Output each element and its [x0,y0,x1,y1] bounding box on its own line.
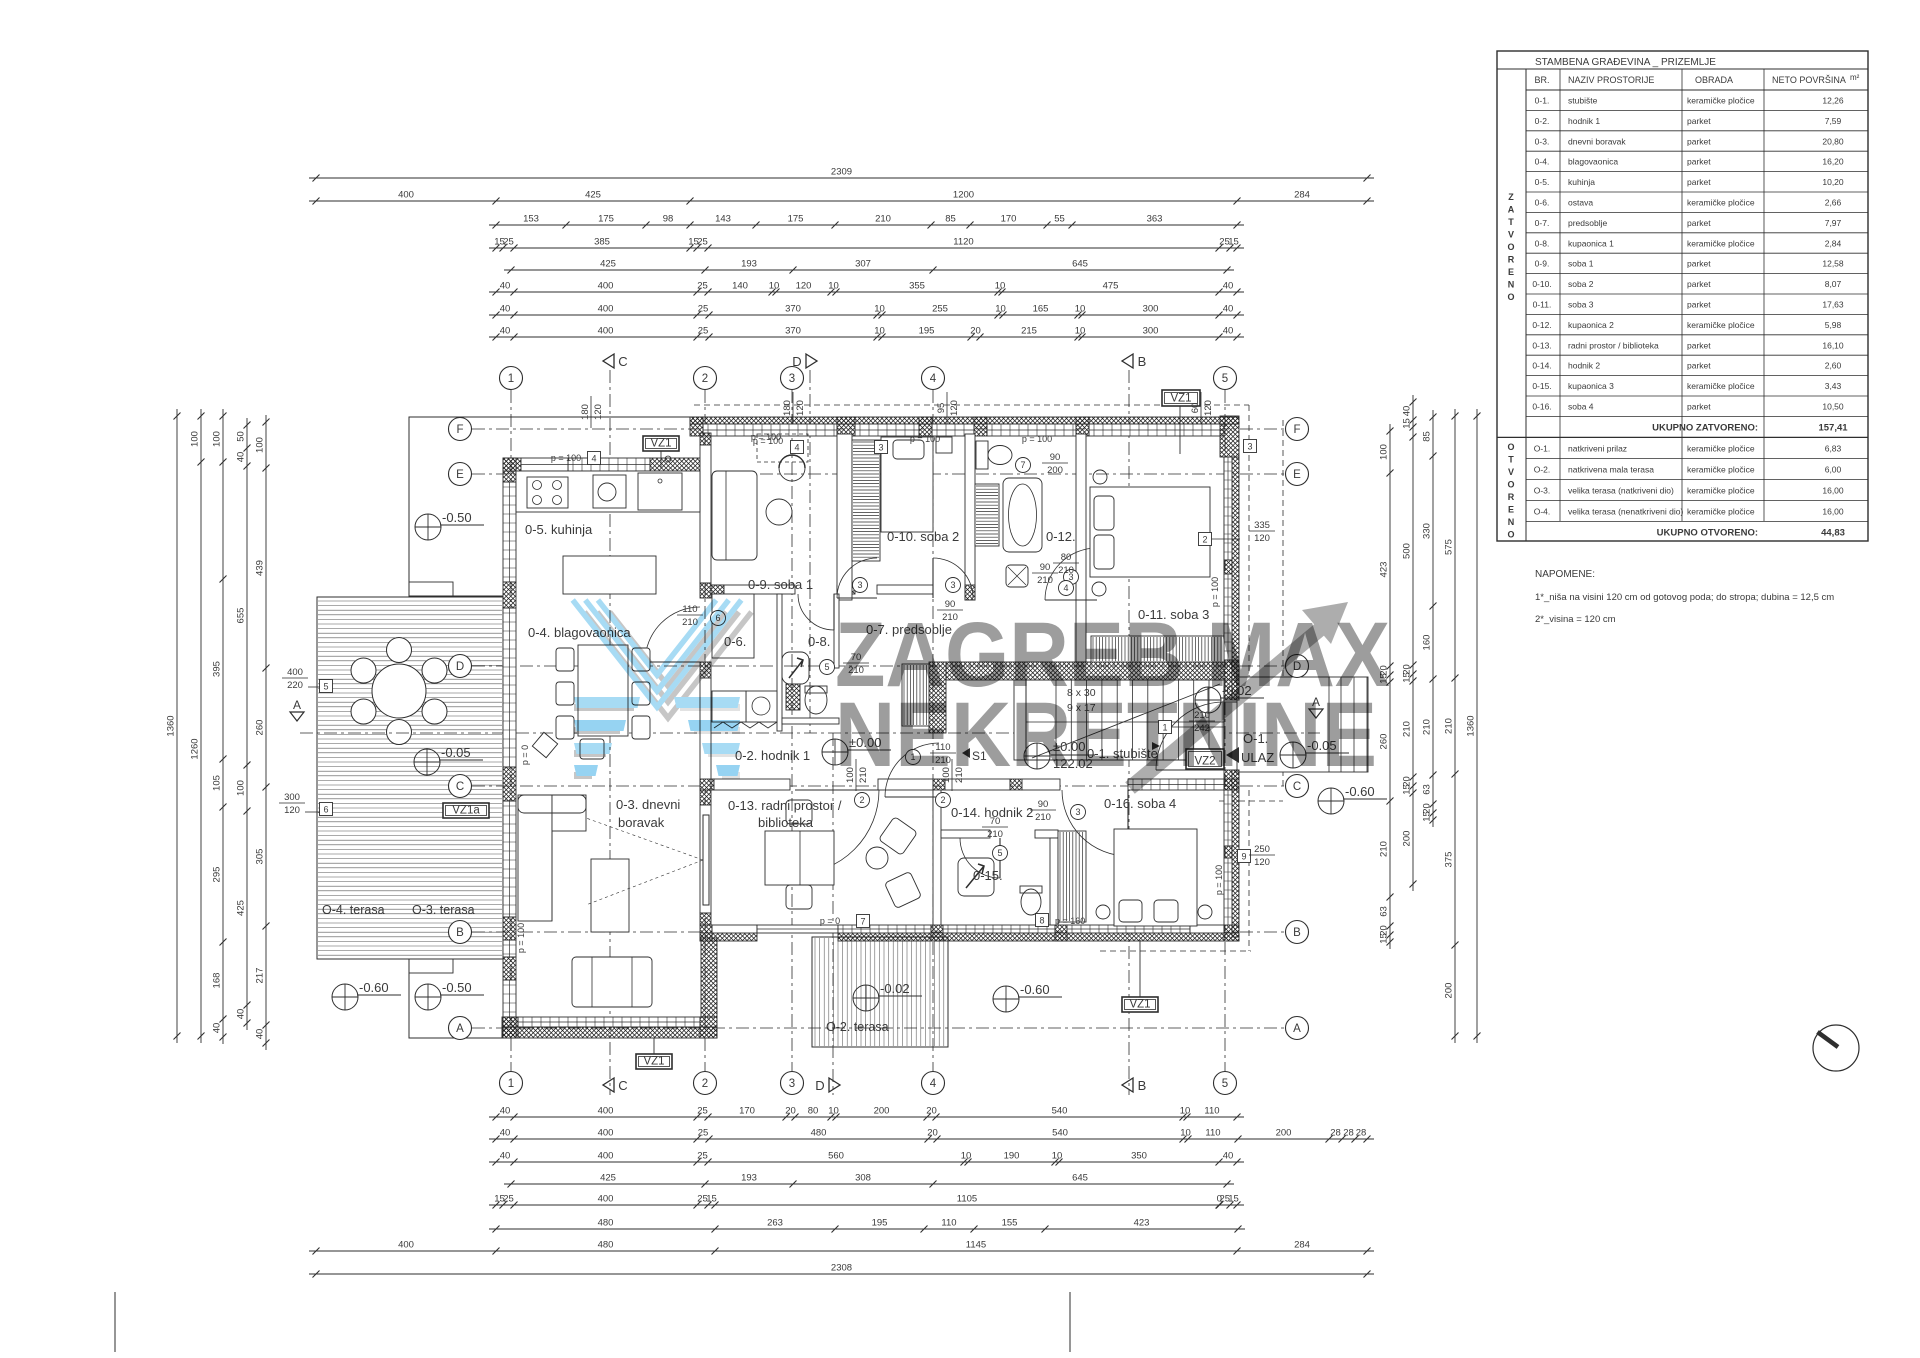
svg-text:2,66: 2,66 [1825,198,1842,208]
svg-text:90: 90 [1038,799,1049,810]
svg-text:6,83: 6,83 [1825,443,1842,453]
svg-text:parket: parket [1687,157,1711,167]
svg-text:velika terasa (natkriveni dio): velika terasa (natkriveni dio) [1568,485,1674,495]
svg-text:-0.02: -0.02 [880,981,910,996]
svg-text:425: 425 [236,900,247,916]
svg-text:p = 100: p = 100 [551,453,581,463]
svg-text:-0.05: -0.05 [441,745,471,760]
svg-text:375: 375 [1444,852,1455,868]
svg-text:parket: parket [1687,177,1711,187]
svg-text:15: 15 [1402,784,1413,795]
svg-text:165: 165 [1033,304,1049,315]
svg-text:15: 15 [706,1194,717,1205]
svg-text:25: 25 [503,237,514,248]
svg-text:400: 400 [598,1106,614,1117]
svg-text:m²: m² [1850,73,1860,82]
svg-text:O: O [1507,292,1514,302]
svg-text:C: C [618,354,627,369]
svg-text:-0.50: -0.50 [442,980,472,995]
svg-text:ostava: ostava [1568,198,1593,208]
svg-text:B: B [1138,354,1147,369]
svg-text:boravak: boravak [618,815,665,830]
svg-text:p = 100: p = 100 [516,923,526,953]
svg-text:120: 120 [1254,857,1270,868]
svg-text:0-3. dnevni: 0-3. dnevni [616,797,680,812]
svg-text:15: 15 [1228,1194,1239,1205]
svg-text:2,84: 2,84 [1825,238,1842,248]
svg-text:10: 10 [1075,304,1086,315]
svg-text:110: 110 [941,1218,956,1229]
svg-text:parket: parket [1687,136,1711,146]
svg-text:parket: parket [1687,116,1711,126]
svg-text:175: 175 [788,214,804,225]
svg-text:-0.50: -0.50 [442,510,472,525]
svg-text:0-5. kuhinja: 0-5. kuhinja [525,522,593,537]
svg-text:400: 400 [287,667,303,678]
svg-text:90: 90 [1050,452,1061,463]
svg-text:63: 63 [1422,784,1433,795]
svg-text:120: 120 [1254,533,1270,544]
svg-text:12,26: 12,26 [1822,96,1844,106]
svg-text:400: 400 [598,281,614,292]
svg-text:25: 25 [697,1151,708,1162]
svg-text:C: C [456,781,464,793]
svg-text:O-2. terasa: O-2. terasa [826,1020,889,1034]
svg-text:15: 15 [1228,237,1239,248]
svg-text:200: 200 [874,1106,890,1117]
svg-text:220: 220 [287,680,303,691]
svg-text:55: 55 [1054,214,1065,225]
svg-text:A: A [456,1023,464,1035]
svg-text:300: 300 [284,792,300,803]
svg-text:215: 215 [1021,326,1037,337]
svg-text:120: 120 [949,400,960,416]
svg-text:0-11.: 0-11. [1533,300,1552,310]
svg-text:VZ1: VZ1 [1129,999,1150,1011]
svg-text:400: 400 [398,190,414,201]
svg-text:predsoblje: predsoblje [1568,218,1607,228]
svg-text:F: F [1293,424,1300,436]
svg-text:100: 100 [190,431,201,447]
svg-text:VZ1: VZ1 [650,438,671,450]
svg-text:335: 335 [1254,520,1270,531]
svg-text:natkriveni prilaz: natkriveni prilaz [1568,443,1627,453]
svg-text:parket: parket [1687,361,1711,371]
svg-text:biblioteka: biblioteka [758,815,814,830]
svg-text:keramičke pločice: keramičke pločice [1687,464,1755,474]
svg-text:1360: 1360 [166,715,177,736]
svg-text:160: 160 [1422,635,1433,651]
svg-text:25: 25 [698,326,709,337]
svg-text:7,59: 7,59 [1825,116,1842,126]
svg-text:25: 25 [697,1106,708,1117]
svg-text:110: 110 [682,604,697,615]
svg-text:20: 20 [926,1106,937,1117]
svg-text:40: 40 [1223,281,1234,292]
svg-text:2,60: 2,60 [1825,361,1842,371]
svg-text:O-2.: O-2. [1534,464,1551,474]
svg-text:velika terasa (nenatkriveni di: velika terasa (nenatkriveni dio) [1568,506,1683,516]
svg-text:2: 2 [1202,535,1207,545]
svg-text:40: 40 [1223,1151,1234,1162]
svg-text:O-3.: O-3. [1534,485,1551,495]
svg-text:200: 200 [1444,983,1455,999]
svg-text:28: 28 [1330,1128,1341,1139]
svg-text:dnevni boravak: dnevni boravak [1568,136,1626,146]
svg-text:475: 475 [1103,281,1119,292]
svg-text:kupaonica 3: kupaonica 3 [1568,381,1614,391]
svg-text:210: 210 [1058,565,1074,576]
svg-text:255: 255 [932,304,948,315]
svg-text:4: 4 [1063,583,1068,593]
svg-text:110: 110 [1204,1106,1219,1117]
svg-text:UKUPNO OTVORENO:: UKUPNO OTVORENO: [1657,527,1758,538]
svg-text:263: 263 [767,1218,783,1229]
svg-text:40: 40 [500,326,511,337]
svg-text:260: 260 [255,720,266,736]
svg-text:0-13.: 0-13. [1532,340,1551,350]
svg-text:soba 2: soba 2 [1568,279,1594,289]
svg-text:kuhinja: kuhinja [1568,177,1595,187]
svg-text:308: 308 [855,1173,871,1184]
svg-text:hodnik 1: hodnik 1 [1568,116,1600,126]
svg-text:10: 10 [1052,1151,1063,1162]
svg-text:560: 560 [828,1151,844,1162]
svg-text:28: 28 [1356,1128,1367,1139]
svg-text:540: 540 [1052,1106,1068,1117]
svg-text:1145: 1145 [966,1240,986,1251]
svg-text:parket: parket [1687,402,1711,412]
svg-text:370: 370 [785,304,801,315]
svg-text:7,97: 7,97 [1825,218,1842,228]
svg-text:E: E [1508,267,1514,277]
svg-text:10: 10 [961,1151,972,1162]
svg-text:210: 210 [987,829,1003,840]
svg-text:3: 3 [789,1078,795,1090]
svg-text:10: 10 [874,326,885,337]
svg-text:110: 110 [1205,1128,1220,1139]
svg-text:0-7.: 0-7. [1535,218,1550,228]
svg-text:284: 284 [1294,190,1310,201]
svg-text:0-15.: 0-15. [973,868,1003,883]
svg-text:O: O [1507,480,1514,490]
svg-text:423: 423 [1379,562,1390,578]
svg-text:0-4.: 0-4. [1535,157,1550,167]
svg-text:D: D [792,354,801,369]
svg-text:parket: parket [1687,300,1711,310]
svg-text:keramičke pločice: keramičke pločice [1687,485,1755,495]
svg-text:400: 400 [598,1194,614,1205]
svg-text:330: 330 [1422,523,1433,539]
svg-text:200: 200 [1047,465,1063,476]
svg-text:O-4. terasa: O-4. terasa [322,903,385,917]
svg-text:0-10. soba 2: 0-10. soba 2 [887,529,959,544]
svg-text:210: 210 [1035,812,1051,823]
svg-text:6,00: 6,00 [1825,464,1842,474]
svg-text:40: 40 [236,452,247,463]
svg-text:20: 20 [927,1128,938,1139]
svg-text:25: 25 [698,1128,709,1139]
svg-text:40: 40 [500,1106,511,1117]
svg-text:keramičke pločice: keramičke pločice [1687,506,1755,516]
svg-text:NETO POVRŠINA: NETO POVRŠINA [1772,75,1846,85]
svg-text:0-9. soba 1: 0-9. soba 1 [748,577,813,592]
svg-text:STAMBENA GRAĐEVINA _ PRIZEMLJE: STAMBENA GRAĐEVINA _ PRIZEMLJE [1535,57,1716,68]
svg-text:395: 395 [212,661,223,677]
svg-text:157,41: 157,41 [1818,422,1848,433]
svg-text:25: 25 [503,1194,514,1205]
svg-text:UKUPNO ZATVORENO:: UKUPNO ZATVORENO: [1652,422,1758,433]
svg-text:OBRADA: OBRADA [1695,75,1733,85]
svg-text:540: 540 [1052,1128,1068,1139]
svg-text:9: 9 [1241,852,1246,862]
svg-text:0-12.: 0-12. [1046,529,1076,544]
svg-text:10: 10 [995,304,1006,315]
svg-text:3: 3 [789,373,795,385]
svg-text:parket: parket [1687,218,1711,228]
svg-text:20: 20 [970,326,981,337]
svg-text:soba 1: soba 1 [1568,259,1594,269]
svg-text:NEKRETNINE: NEKRETNINE [835,684,1377,786]
svg-text:180: 180 [580,404,591,420]
svg-text:1360: 1360 [1466,715,1477,736]
svg-text:2: 2 [702,373,708,385]
svg-text:p = 0: p = 0 [520,745,530,765]
svg-text:NAZIV PROSTORIJE: NAZIV PROSTORIJE [1568,75,1654,85]
svg-text:15: 15 [1402,418,1413,429]
svg-text:480: 480 [811,1128,827,1139]
svg-text:100: 100 [1379,444,1390,460]
svg-text:0-10.: 0-10. [1532,279,1551,289]
svg-text:645: 645 [1072,259,1088,270]
svg-text:A: A [293,698,301,712]
svg-text:parket: parket [1687,259,1711,269]
svg-text:40: 40 [1223,326,1234,337]
svg-text:193: 193 [741,259,757,270]
svg-text:98: 98 [663,214,674,225]
svg-text:40: 40 [500,1151,511,1162]
svg-text:parket: parket [1687,340,1711,350]
svg-text:1105: 1105 [957,1194,977,1205]
svg-text:O-4.: O-4. [1534,506,1551,516]
svg-text:40: 40 [255,1029,266,1040]
svg-text:500: 500 [1402,543,1413,559]
svg-text:425: 425 [600,1173,616,1184]
svg-text:63: 63 [1379,906,1390,917]
svg-text:175: 175 [598,214,614,225]
svg-text:O-1.: O-1. [1534,443,1551,453]
svg-text:120: 120 [593,404,604,420]
svg-text:B: B [1293,927,1301,939]
svg-text:180: 180 [782,400,793,416]
svg-text:0-16.: 0-16. [1532,402,1551,412]
svg-text:-0.60: -0.60 [1345,784,1375,799]
svg-text:p = 0: p = 0 [820,916,840,926]
svg-text:2308: 2308 [831,1263,852,1274]
svg-text:V: V [1508,467,1514,477]
svg-text:4: 4 [591,454,596,464]
svg-text:40: 40 [500,304,511,315]
svg-text:keramičke pločice: keramičke pločice [1687,443,1755,453]
svg-text:A: A [1508,205,1515,215]
svg-text:200: 200 [1402,831,1413,847]
svg-text:40: 40 [500,281,511,292]
svg-text:210: 210 [1379,841,1390,857]
svg-text:370: 370 [785,326,801,337]
svg-text:V: V [1508,230,1514,240]
svg-text:F: F [456,424,463,436]
svg-text:85: 85 [945,214,956,225]
svg-text:radni prostor / biblioteka: radni prostor / biblioteka [1568,340,1659,350]
svg-text:O: O [1507,530,1514,540]
svg-text:0-8.: 0-8. [1535,238,1550,248]
svg-text:284: 284 [1294,1240,1310,1251]
svg-text:O-3. terasa: O-3. terasa [412,903,475,917]
svg-text:0-13. radni prostor /: 0-13. radni prostor / [728,798,842,813]
svg-text:C: C [618,1078,627,1093]
svg-text:16,00: 16,00 [1822,485,1844,495]
svg-text:40: 40 [212,1023,223,1034]
svg-text:100: 100 [236,780,247,796]
svg-text:0-3.: 0-3. [1535,136,1550,146]
svg-text:10: 10 [1075,326,1086,337]
svg-text:655: 655 [236,608,247,624]
svg-text:BR.: BR. [1534,75,1549,85]
svg-text:0-5.: 0-5. [1535,177,1550,187]
svg-text:10: 10 [874,304,885,315]
svg-text:A: A [1293,1023,1301,1035]
svg-text:363: 363 [1147,214,1163,225]
svg-text:210: 210 [1422,719,1433,735]
svg-text:3: 3 [1247,442,1252,452]
svg-text:O: O [1507,442,1514,452]
svg-text:1120: 1120 [953,237,973,248]
svg-text:25: 25 [697,237,708,248]
svg-text:p = 160: p = 160 [1055,916,1085,926]
svg-text:2309: 2309 [831,167,852,178]
svg-text:soba 3: soba 3 [1568,300,1594,310]
svg-text:90: 90 [1040,562,1051,573]
svg-text:400: 400 [398,1240,414,1251]
svg-text:B: B [456,927,464,939]
svg-text:p = 100: p = 100 [910,434,940,444]
svg-text:307: 307 [855,259,871,270]
svg-text:NAPOMENE:: NAPOMENE: [1535,569,1595,580]
svg-text:400: 400 [598,304,614,315]
svg-text:300: 300 [1143,326,1159,337]
svg-text:439: 439 [255,560,266,576]
svg-text:305: 305 [255,849,266,865]
svg-text:p = 100: p = 100 [1022,434,1052,444]
svg-text:-0.60: -0.60 [1020,982,1050,997]
svg-text:D: D [815,1078,824,1093]
svg-text:0-8.: 0-8. [808,634,830,649]
svg-text:10: 10 [1180,1128,1191,1139]
svg-text:480: 480 [598,1240,614,1251]
svg-text:350: 350 [1131,1151,1147,1162]
svg-text:170: 170 [739,1106,755,1117]
svg-text:1200: 1200 [953,190,974,201]
svg-text:keramičke pločice: keramičke pločice [1687,198,1755,208]
svg-text:295: 295 [212,867,223,883]
svg-text:stubište: stubište [1568,96,1598,106]
svg-text:190: 190 [1004,1151,1020,1162]
svg-text:16,20: 16,20 [1822,157,1844,167]
svg-text:p = 100: p = 100 [1214,865,1224,895]
svg-text:400: 400 [598,326,614,337]
svg-text:15: 15 [1379,933,1390,944]
svg-text:4: 4 [930,373,937,385]
svg-text:T: T [1508,455,1514,465]
svg-text:15: 15 [1402,672,1413,683]
svg-text:2: 2 [702,1078,708,1090]
svg-text:85: 85 [1422,431,1433,442]
svg-text:170: 170 [1001,214,1017,225]
svg-text:5,98: 5,98 [1825,320,1842,330]
svg-text:28: 28 [1343,1128,1354,1139]
svg-text:155: 155 [1002,1218,1018,1229]
svg-text:hodnik 2: hodnik 2 [1568,361,1600,371]
svg-text:425: 425 [600,259,616,270]
svg-text:193: 193 [741,1173,757,1184]
svg-text:0-2.: 0-2. [1535,116,1550,126]
svg-text:6: 6 [323,805,328,815]
svg-text:210: 210 [1037,575,1053,586]
svg-text:kupaonica 2: kupaonica 2 [1568,320,1614,330]
svg-text:E: E [1508,505,1514,515]
svg-text:400: 400 [598,1151,614,1162]
svg-text:T: T [1508,217,1514,227]
svg-text:0-2. hodnik 1: 0-2. hodnik 1 [735,748,810,763]
svg-text:20: 20 [785,1106,796,1117]
svg-text:VZ1a: VZ1a [452,805,480,817]
svg-text:B: B [1138,1078,1147,1093]
svg-text:8,07: 8,07 [1825,279,1842,289]
svg-text:140: 140 [732,281,748,292]
svg-text:5: 5 [824,662,829,672]
svg-text:7: 7 [1020,460,1025,470]
svg-text:5: 5 [1222,1078,1228,1090]
svg-text:N: N [1508,517,1515,527]
svg-text:80: 80 [1061,552,1072,563]
svg-text:10,50: 10,50 [1822,402,1844,412]
svg-text:575: 575 [1444,539,1455,555]
svg-text:5: 5 [997,848,1002,858]
svg-text:4: 4 [794,443,799,453]
svg-text:N: N [1508,280,1515,290]
svg-text:120: 120 [796,281,812,292]
svg-text:kupaonica 1: kupaonica 1 [1568,238,1614,248]
svg-text:0-12.: 0-12. [1532,320,1551,330]
svg-text:40: 40 [1223,304,1234,315]
svg-text:keramičke pločice: keramičke pločice [1687,238,1755,248]
svg-text:7: 7 [860,917,865,927]
svg-text:10: 10 [1180,1106,1191,1117]
svg-text:143: 143 [715,214,731,225]
svg-text:3: 3 [857,580,862,590]
svg-text:16,10: 16,10 [1822,340,1844,350]
svg-text:425: 425 [585,190,601,201]
svg-text:3,43: 3,43 [1825,381,1842,391]
svg-text:p = 100: p = 100 [751,432,781,442]
svg-text:1: 1 [508,1078,514,1090]
svg-text:2*_visina = 120 cm: 2*_visina = 120 cm [1535,614,1616,625]
svg-text:50: 50 [236,431,247,442]
svg-text:0-9.: 0-9. [1535,259,1550,269]
svg-text:VZ1: VZ1 [1170,393,1191,405]
svg-text:120: 120 [284,805,300,816]
svg-text:120: 120 [795,400,806,416]
